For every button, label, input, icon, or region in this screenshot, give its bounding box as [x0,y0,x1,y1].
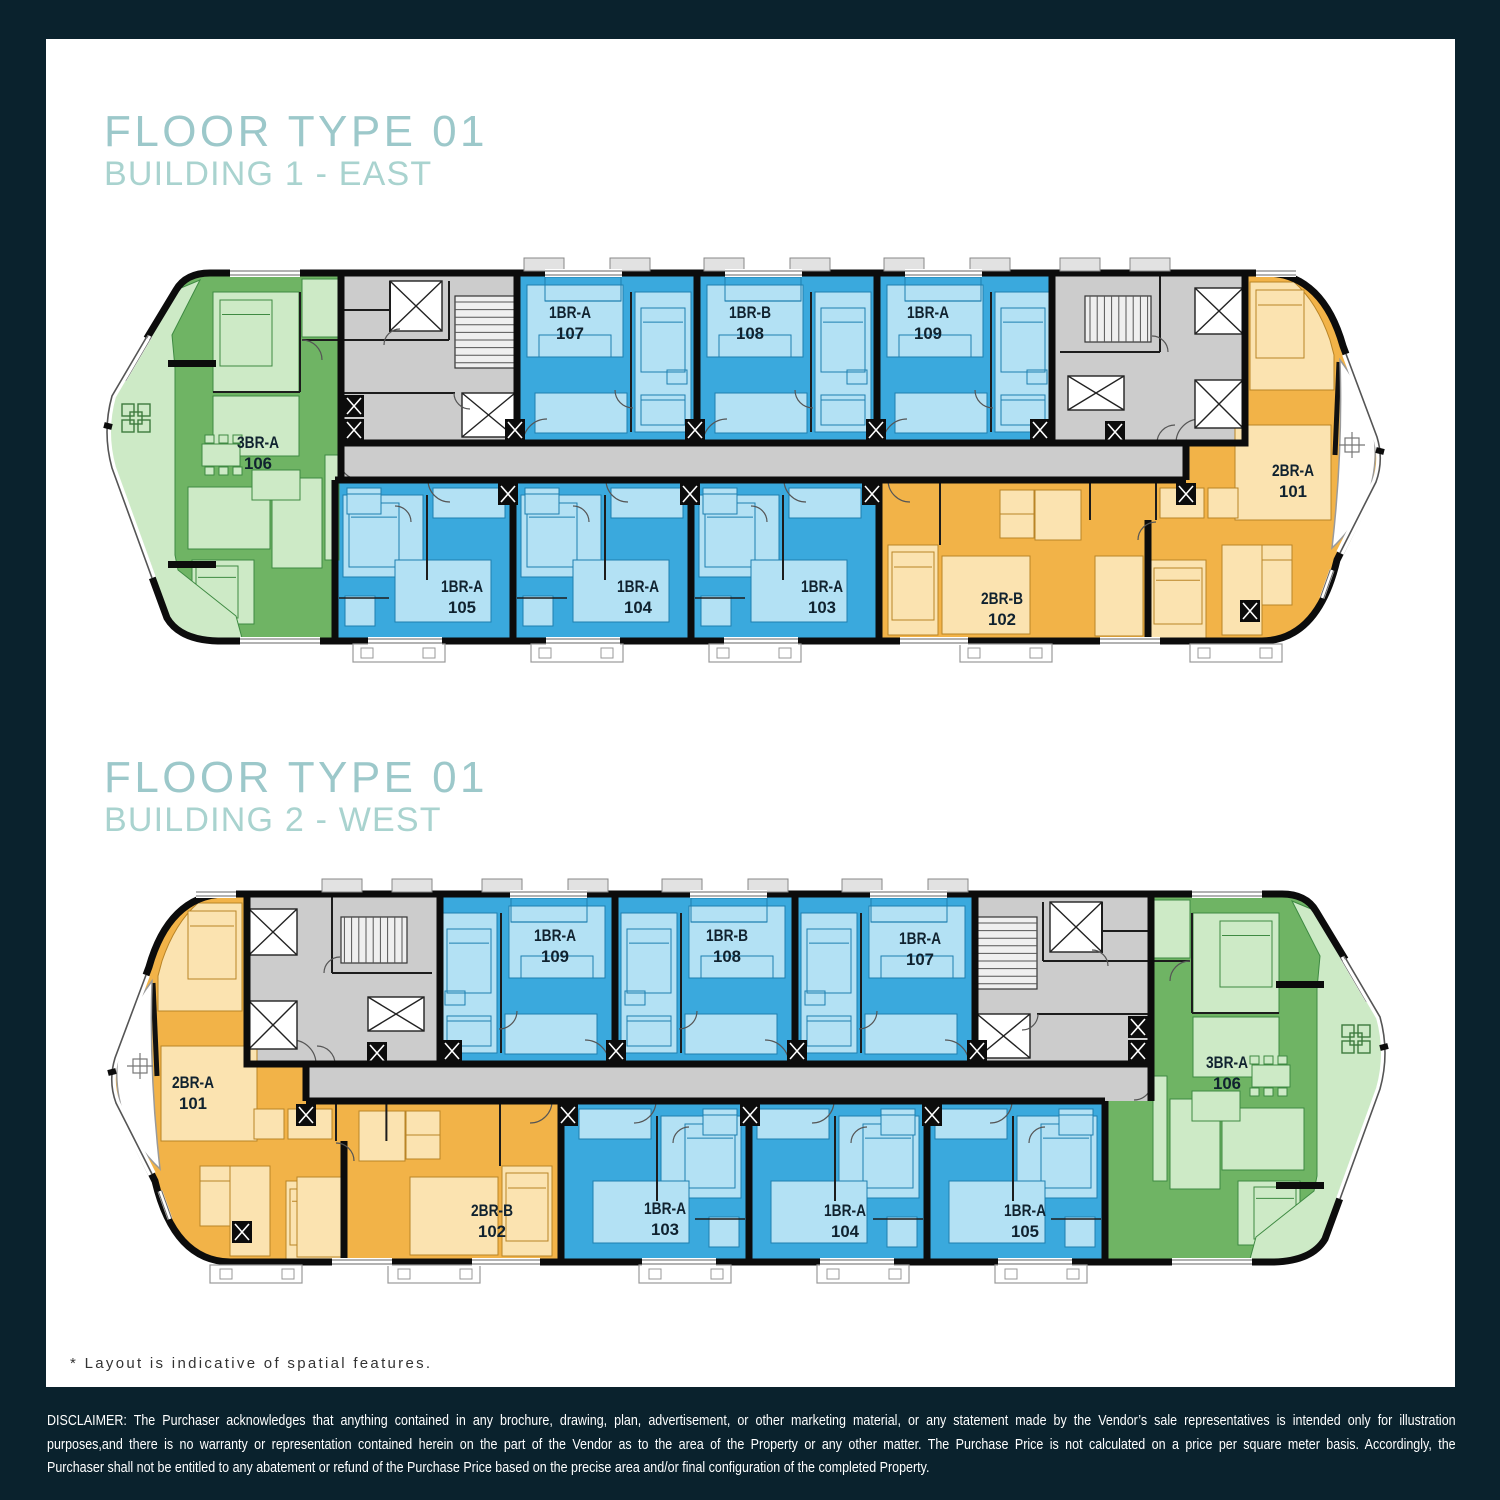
svg-text:2BR-B: 2BR-B [981,589,1023,608]
svg-text:1BR-A: 1BR-A [907,303,949,322]
svg-text:103: 103 [808,598,836,617]
svg-text:101: 101 [1279,482,1307,501]
svg-text:106: 106 [244,454,272,473]
svg-text:3BR-A: 3BR-A [237,433,279,452]
svg-text:1BR-A: 1BR-A [1004,1201,1046,1220]
svg-text:106: 106 [1213,1074,1241,1093]
svg-text:103: 103 [651,1220,679,1239]
svg-text:1BR-B: 1BR-B [706,926,748,945]
svg-text:108: 108 [736,324,764,343]
svg-text:1BR-A: 1BR-A [824,1201,866,1220]
svg-text:107: 107 [556,324,584,343]
svg-text:102: 102 [988,610,1016,629]
svg-text:2BR-A: 2BR-A [172,1073,214,1092]
svg-text:107: 107 [906,950,934,969]
svg-text:1BR-A: 1BR-A [801,577,843,596]
svg-text:1BR-A: 1BR-A [899,929,941,948]
svg-text:1BR-A: 1BR-A [534,926,576,945]
svg-text:102: 102 [478,1222,506,1241]
svg-text:1BR-A: 1BR-A [644,1199,686,1218]
svg-text:104: 104 [624,598,653,617]
svg-text:1BR-A: 1BR-A [441,577,483,596]
svg-text:101: 101 [179,1094,207,1113]
svg-text:109: 109 [914,324,942,343]
svg-text:104: 104 [831,1222,860,1241]
svg-text:1BR-B: 1BR-B [729,303,771,322]
svg-text:109: 109 [541,947,569,966]
svg-text:2BR-B: 2BR-B [471,1201,513,1220]
svg-text:3BR-A: 3BR-A [1206,1053,1248,1072]
svg-text:105: 105 [448,598,476,617]
svg-text:2BR-A: 2BR-A [1272,461,1314,480]
svg-text:1BR-A: 1BR-A [617,577,659,596]
svg-text:108: 108 [713,947,741,966]
svg-text:105: 105 [1011,1222,1039,1241]
svg-text:1BR-A: 1BR-A [549,303,591,322]
